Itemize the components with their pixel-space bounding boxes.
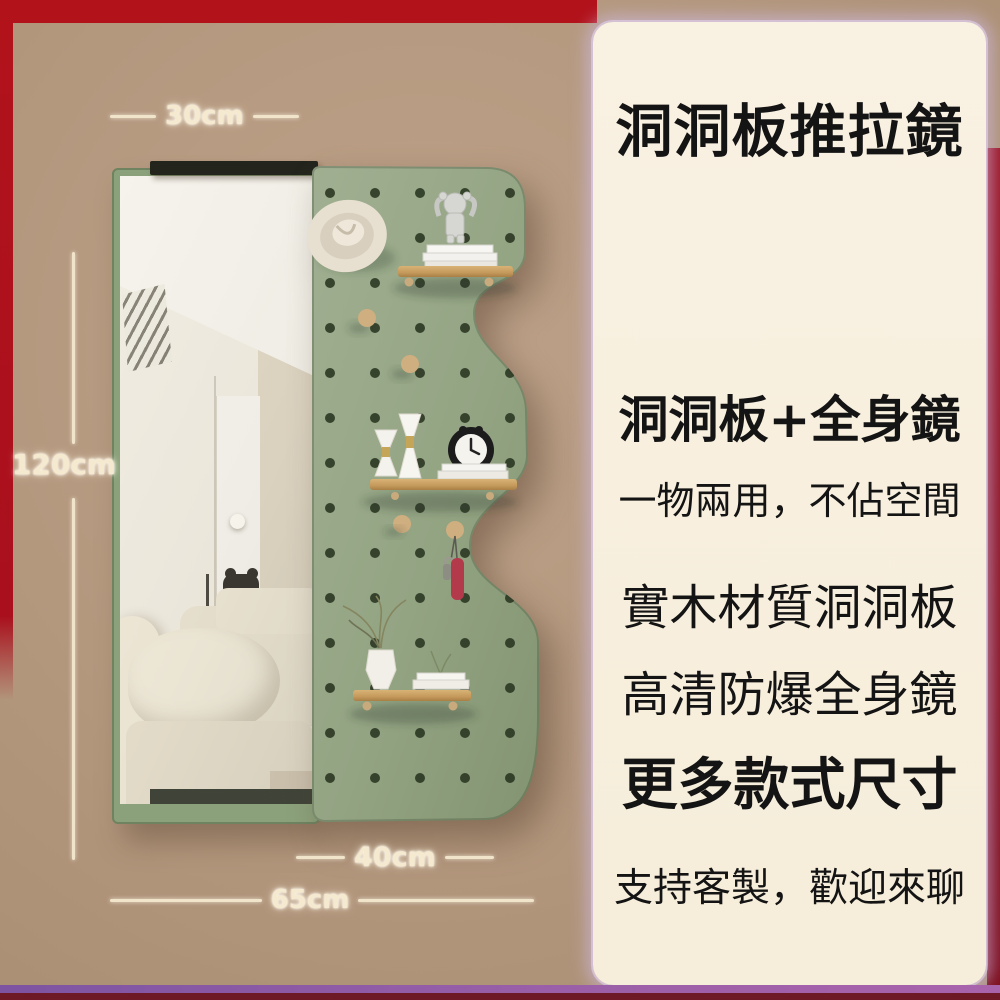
dimension-height-line-top xyxy=(72,252,75,444)
book-stack-middle xyxy=(438,464,508,479)
dimension-line xyxy=(110,899,262,902)
top-shelf xyxy=(398,266,513,277)
pegboard xyxy=(305,158,555,838)
dimension-line xyxy=(253,115,299,118)
dimension-label-40cm: 40cm xyxy=(354,842,436,873)
dimension-label-120cm: 120cm xyxy=(2,448,126,481)
mirror-sliding-track xyxy=(150,161,318,175)
dimension-label-65cm: 65cm xyxy=(271,885,350,915)
feature-line-2: 一物兩用，不佔空間 xyxy=(593,470,986,525)
feature-line-6: 支持客製，歡迎來聊 xyxy=(593,857,986,913)
bottom-dark-border xyxy=(0,993,1000,1000)
book-stack-top xyxy=(423,245,497,267)
dimension-line xyxy=(445,856,494,859)
feature-line-4: 高清防爆全身鏡 xyxy=(593,655,986,725)
dimension-height-line-bottom xyxy=(72,498,75,860)
dimension-label-30cm: 30cm xyxy=(165,101,244,131)
mirror-reflection-scene xyxy=(120,176,314,804)
product-advertisement-image: 30cm 120cm 40cm 65cm 洞洞板推拉鏡 洞洞板+全身鏡 一物兩用… xyxy=(0,0,1000,1000)
dimension-line xyxy=(110,115,156,118)
dimension-line xyxy=(296,856,345,859)
feature-line-5: 更多款式尺寸 xyxy=(593,740,986,821)
dimension-pegboard-width: 40cm xyxy=(296,842,514,873)
dimension-line xyxy=(358,899,534,902)
bottom-shelf xyxy=(353,690,471,701)
mirror-sheen xyxy=(120,176,314,804)
top-red-border xyxy=(0,0,597,23)
red-lanyard-tassel xyxy=(451,558,464,600)
dimension-mirror-width: 30cm xyxy=(110,101,310,131)
feature-line-3: 實木材質洞洞板 xyxy=(593,568,986,638)
middle-shelf xyxy=(370,479,517,490)
product-title: 洞洞板推拉鏡 xyxy=(593,86,986,168)
book-stack-bottom xyxy=(413,673,469,689)
info-panel: 洞洞板推拉鏡 洞洞板+全身鏡 一物兩用，不佔空間 實木材質洞洞板 高清防爆全身鏡… xyxy=(593,22,986,985)
mirror-glass xyxy=(120,176,314,804)
left-red-border xyxy=(0,0,13,700)
full-length-mirror xyxy=(112,168,320,824)
right-maroon-border xyxy=(987,148,1000,1000)
dimension-total-width: 65cm xyxy=(110,885,534,915)
feature-line-1: 洞洞板+全身鏡 xyxy=(593,380,986,452)
